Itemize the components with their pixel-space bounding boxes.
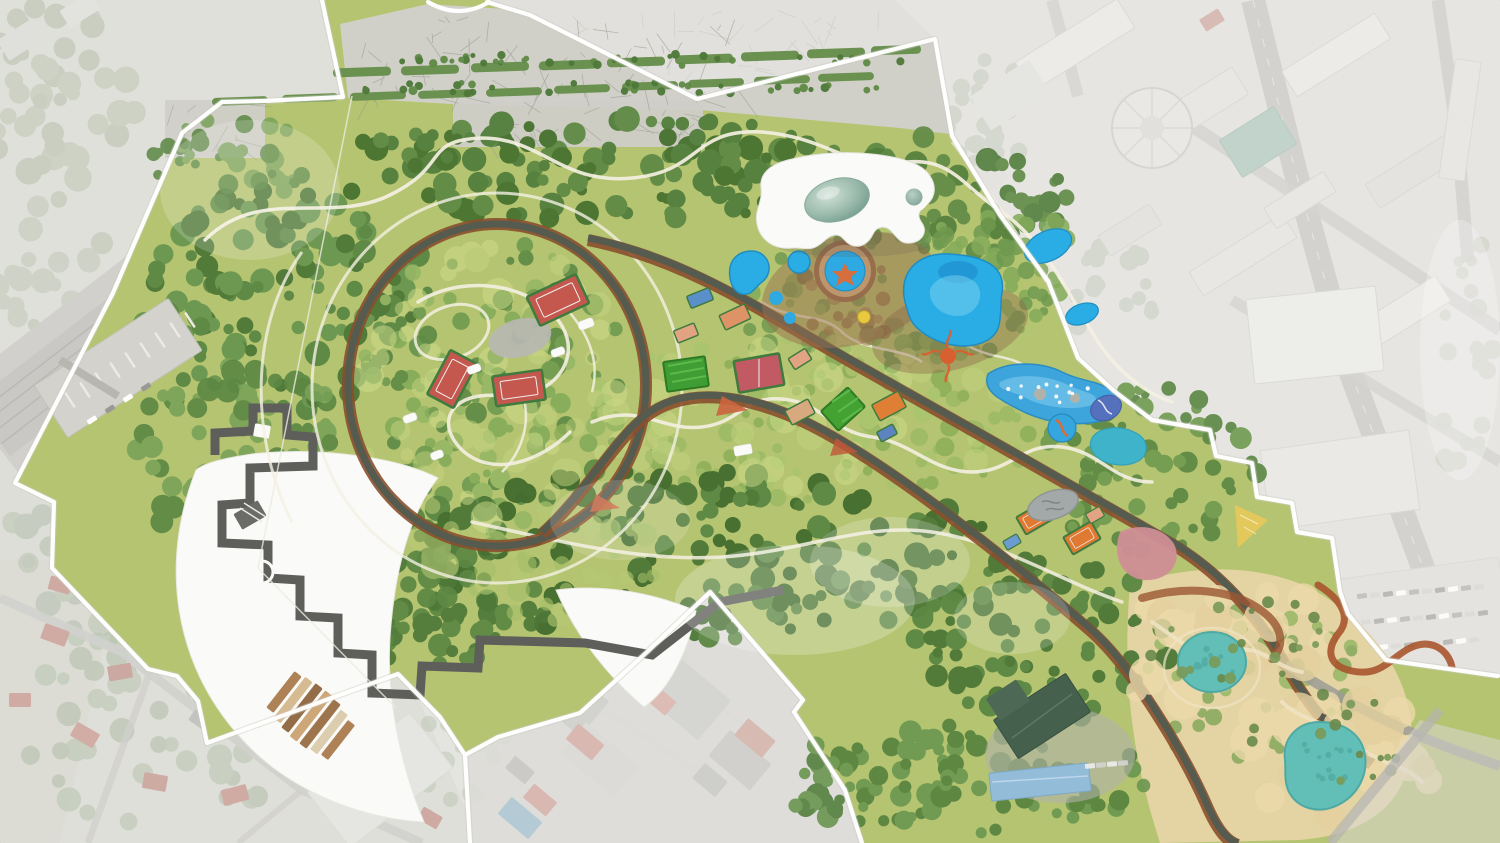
park-vegetation-blob (941, 775, 952, 786)
park-vegetation-blob (619, 571, 633, 585)
trucks-unit (1096, 762, 1106, 768)
park-vegetation-blob (148, 260, 165, 277)
park-vegetation-blob (223, 324, 233, 334)
alley-trees-blob (468, 81, 476, 89)
park-vegetation-blob (699, 472, 719, 492)
park-vegetation-blob (399, 326, 415, 342)
river-island (1034, 388, 1046, 400)
trucks-unit (1107, 761, 1117, 767)
park-vegetation-blob (915, 729, 936, 750)
octopus-slide (940, 348, 956, 364)
beach-trees-blob (1262, 596, 1274, 608)
park-vegetation-blob (792, 467, 801, 476)
park-vegetation-blob (753, 417, 763, 427)
park-vegetation-blob (1173, 488, 1188, 503)
park-vegetation-blob (724, 360, 733, 369)
haze (160, 120, 340, 260)
park-vegetation-blob (400, 576, 416, 592)
park-vegetation-blob (437, 586, 458, 607)
alley-trees-blob (480, 59, 487, 66)
trucks-unit (1085, 763, 1095, 769)
park-master-plan (0, 0, 1500, 843)
park-vegetation-blob (794, 500, 805, 511)
tennis-court-red (492, 370, 546, 407)
park-vegetation-blob (429, 410, 447, 428)
park-vegetation-blob (417, 133, 435, 151)
park-vegetation-blob (933, 648, 943, 658)
park-vegetation-blob (725, 517, 741, 533)
park-vegetation-blob (925, 664, 948, 687)
beach-trees-blob (1384, 754, 1391, 761)
park-vegetation-blob (582, 567, 599, 584)
park-vegetation-blob (151, 495, 174, 518)
park-vegetation-blob (676, 117, 690, 131)
beach-trees-blob (1213, 602, 1225, 614)
beach-trees-blob (1209, 656, 1221, 668)
alley-trees-blob (469, 89, 476, 96)
park-vegetation-blob (988, 411, 1001, 424)
park-vegetation-blob (222, 337, 246, 361)
pond-ripples-blob (1304, 748, 1310, 754)
white-pad (332, 514, 345, 525)
park-vegetation-blob (761, 153, 772, 164)
park-vegetation-blob (440, 265, 456, 281)
park-vegetation-blob (743, 323, 756, 336)
park-vegetation-blob (671, 452, 690, 471)
beach-sand-blob (1255, 783, 1285, 813)
park-vegetation-blob (441, 608, 456, 623)
alley-trees-blob (808, 87, 813, 92)
park-vegetation-blob (638, 573, 649, 584)
park-vegetation-blob (899, 780, 912, 793)
park-vegetation-blob (157, 389, 169, 401)
park-vegetation-blob (316, 386, 333, 403)
park-vegetation-blob (947, 731, 964, 748)
park-vegetation-blob (483, 469, 491, 477)
park-vegetation-blob (740, 208, 750, 218)
park-vegetation-blob (906, 629, 926, 649)
park-vegetation-blob (976, 827, 987, 838)
park-vegetation-blob (556, 458, 582, 484)
alley-trees-blob (679, 62, 686, 69)
park-vegetation-blob (597, 572, 612, 587)
park-vegetation-blob (661, 116, 675, 130)
park-vegetation-blob (821, 775, 833, 787)
beach-trees-blob (1291, 600, 1300, 609)
alley-trees-blob (569, 60, 575, 66)
park-vegetation-blob (971, 236, 990, 255)
park-vegetation-blob (417, 588, 437, 608)
river-floats-blob (1045, 383, 1049, 387)
park-vegetation-blob (647, 569, 660, 582)
park-vegetation-blob (176, 372, 191, 387)
pond-ripples-blob (1203, 657, 1208, 662)
park-vegetation-blob (499, 143, 519, 163)
park-vegetation-blob (962, 696, 975, 709)
park-vegetation-blob (659, 128, 677, 146)
park-vegetation-blob (469, 473, 480, 484)
park-vegetation-blob (1205, 459, 1221, 475)
park-vegetation-blob (355, 134, 371, 150)
alley-trees-blob (593, 60, 602, 69)
park-vegetation-blob (910, 428, 928, 446)
park-vegetation-blob (524, 121, 535, 132)
beach-trees-blob (1317, 689, 1329, 701)
pond-ripples-blob (1197, 664, 1202, 669)
alley-trees-blob (545, 88, 553, 96)
park-vegetation-blob (425, 498, 441, 514)
park-vegetation-blob (343, 183, 360, 200)
park-vegetation-blob (703, 503, 719, 519)
park-vegetation-blob (738, 178, 753, 193)
alley-trees-blob (493, 59, 499, 65)
alley-trees-blob (489, 85, 495, 91)
alley-trees-blob (499, 59, 504, 64)
park-vegetation-blob (725, 142, 741, 158)
park-vegetation-blob (701, 113, 718, 130)
park-vegetation-blob (505, 425, 513, 433)
park-vegetation-blob (537, 174, 548, 185)
deck-texture-blob (841, 317, 852, 328)
park-vegetation-blob (1009, 153, 1026, 170)
alley-trees-blob (453, 81, 461, 89)
park-vegetation-blob (141, 436, 163, 458)
park-vegetation-blob (540, 598, 553, 611)
alley-trees-blob (699, 52, 707, 60)
beach-trees-blob (1336, 776, 1345, 785)
beach-trees-blob (1329, 719, 1341, 731)
deck-texture-blob (874, 315, 883, 324)
river-floats-blob (1086, 386, 1090, 390)
beach-trees-blob (1346, 700, 1355, 709)
park-vegetation-blob (966, 735, 988, 757)
park-vegetation-blob (418, 326, 437, 345)
beach-trees-blob (1341, 709, 1352, 720)
park-vegetation-blob (249, 330, 261, 342)
park-vegetation-blob (1205, 501, 1223, 519)
park-vegetation-blob (1080, 562, 1097, 579)
mini-pitch-green (663, 356, 709, 392)
park-vegetation-blob (858, 802, 868, 812)
river-floats-blob (1019, 395, 1023, 399)
beach-trees-blob (1225, 672, 1236, 683)
park-vegetation-blob (1052, 173, 1064, 185)
park-vegetation-blob (337, 307, 350, 320)
park-vegetation-blob (446, 645, 458, 657)
park-vegetation-blob (1049, 666, 1060, 677)
park-vegetation-blob (713, 534, 726, 547)
park-vegetation-blob (948, 666, 971, 689)
park-vegetation-blob (408, 158, 423, 173)
park-vegetation-blob (460, 491, 474, 505)
park-vegetation-blob (1013, 169, 1026, 182)
park-vegetation-blob (813, 362, 843, 392)
park-vegetation-blob (464, 247, 489, 272)
park-vegetation-blob (1067, 811, 1080, 824)
beach-trees-blob (1370, 699, 1378, 707)
alley-trees-blob (545, 58, 554, 67)
park-vegetation-blob (951, 755, 962, 766)
park-vegetation-blob (733, 492, 748, 507)
alley-trees-blob (450, 89, 457, 96)
beach-trees-blob (1296, 644, 1303, 651)
alley-trees-blob (458, 57, 464, 63)
park-vegetation-blob (539, 208, 559, 228)
park-vegetation-blob (1189, 390, 1208, 409)
park-vegetation-blob (799, 768, 810, 779)
park-vegetation-blob (506, 257, 514, 265)
park-vegetation-blob (995, 158, 1008, 171)
beach-trees-blob (1168, 626, 1174, 632)
park-vegetation-blob (932, 231, 950, 249)
park-vegetation-blob (812, 482, 836, 506)
park-vegetation-blob (1082, 641, 1095, 654)
park-vegetation-blob (834, 462, 858, 486)
park-vegetation-blob (336, 234, 355, 253)
park-vegetation-blob (1131, 580, 1142, 591)
park-vegetation-blob (724, 199, 743, 218)
park-vegetation-blob (1203, 524, 1221, 542)
park-vegetation-blob (646, 116, 657, 127)
park-vegetation-blob (268, 374, 282, 388)
park-vegetation-blob (507, 605, 523, 621)
alley-trees-blob (363, 86, 368, 91)
river-floats-blob (1054, 394, 1058, 398)
alley-trees-blob (821, 83, 830, 92)
park-vegetation-blob (433, 172, 457, 196)
alley-trees-blob (409, 86, 418, 95)
deck-texture-blob (876, 292, 891, 307)
park-vegetation-blob (474, 559, 495, 580)
park-vegetation-blob (292, 321, 305, 334)
park-vegetation-blob (989, 824, 1001, 836)
park-vegetation-blob (1020, 426, 1037, 443)
park-vegetation-blob (186, 250, 197, 261)
alley-trees-blob (470, 53, 475, 58)
park-vegetation-blob (359, 349, 372, 362)
park-vegetation-blob (719, 464, 736, 481)
park-vegetation-blob (1004, 656, 1015, 667)
beach-trees-blob (1247, 736, 1258, 747)
park-vegetation-blob (689, 129, 706, 146)
beach-trees-blob (1356, 751, 1364, 759)
park-vegetation-blob (981, 217, 996, 232)
beach-trees-blob (1228, 643, 1238, 653)
park-vegetation-blob (1137, 779, 1151, 793)
park-vegetation-blob (803, 495, 812, 504)
haze (810, 517, 970, 607)
park-vegetation-blob (601, 380, 627, 406)
park-vegetation-blob (839, 763, 853, 777)
park-vegetation-blob (192, 425, 207, 440)
park-vegetation-blob (657, 192, 667, 202)
park-vegetation-blob (950, 649, 963, 662)
deck-texture-blob (824, 326, 834, 336)
park-vegetation-blob (1128, 498, 1145, 515)
park-vegetation-blob (869, 766, 888, 785)
park-vegetation-blob (535, 405, 556, 426)
alley-trees-blob (631, 56, 638, 63)
park-vegetation-blob (186, 268, 204, 286)
park-vegetation-blob (397, 622, 410, 635)
alley-trees-blob (523, 56, 529, 62)
river-floats-blob (1058, 401, 1062, 405)
pond-ripples-blob (1203, 646, 1210, 653)
alley-trees-blob (497, 51, 505, 59)
beach-trees-blob (1312, 641, 1319, 648)
master-plan-rendering (0, 0, 1500, 843)
beach-trees-blob (1217, 674, 1226, 683)
haze (550, 480, 690, 560)
park-vegetation-blob (145, 460, 161, 476)
park-vegetation-blob (284, 291, 294, 301)
alley-trees-blob (718, 83, 723, 88)
beach-trees-blob (1279, 670, 1286, 677)
park-vegetation-blob (472, 195, 493, 216)
park-vegetation-blob (878, 815, 889, 826)
alley-trees-blob (429, 59, 437, 67)
park-vegetation-blob (1145, 450, 1163, 468)
pond-ripples-blob (1317, 755, 1321, 759)
park-vegetation-blob (373, 132, 389, 148)
beach-trees-blob (1249, 608, 1255, 614)
park-vegetation-blob (587, 390, 604, 407)
park-vegetation-blob (527, 432, 543, 448)
trucks-unit (1118, 760, 1128, 766)
park-vegetation-blob (395, 370, 408, 383)
park-vegetation-blob (395, 302, 409, 316)
park-vegetation-blob (382, 167, 399, 184)
park-vegetation-blob (140, 397, 158, 415)
park-vegetation-blob (614, 106, 640, 132)
park-vegetation-blob (518, 555, 537, 574)
park-vegetation-blob (246, 367, 267, 388)
park-vegetation-blob (923, 631, 938, 646)
park-vegetation-blob (964, 449, 988, 473)
pond-ripples-blob (1326, 767, 1332, 773)
park-vegetation-blob (1161, 381, 1176, 396)
beach-trees-blob (1237, 639, 1246, 648)
park-vegetation-blob (543, 483, 560, 500)
park-vegetation-blob (1188, 524, 1198, 534)
park-vegetation-blob (971, 780, 987, 796)
park-vegetation-blob (566, 128, 581, 143)
alley-trees-blob (768, 87, 774, 93)
park-vegetation-blob (783, 476, 803, 496)
river-floats-blob (1006, 387, 1010, 391)
park-vegetation-blob (665, 207, 686, 228)
alley-trees-blob (621, 87, 628, 94)
alley-trees-blob (797, 54, 803, 60)
beach-sand-blob (1126, 681, 1147, 702)
park-vegetation-blob (539, 160, 550, 171)
park-vegetation-blob (758, 456, 784, 482)
park-vegetation-blob (321, 434, 338, 451)
beach-trees-blob (1186, 666, 1194, 674)
park-vegetation-blob (1202, 691, 1214, 703)
alley-trees-blob (631, 81, 639, 89)
alley-trees-blob (399, 58, 405, 64)
pond-ripples-blob (1316, 773, 1321, 778)
beach-trees-blob (1315, 728, 1326, 739)
park-vegetation-blob (452, 312, 470, 330)
pond-ripples-blob (1325, 752, 1331, 758)
beach-trees-blob (1308, 612, 1319, 623)
park-vegetation-blob (731, 422, 755, 446)
plunge-pool (769, 291, 783, 305)
alley-trees-blob (671, 50, 680, 59)
park-vegetation-blob (746, 119, 758, 131)
park-vegetation-blob (961, 367, 985, 391)
park-vegetation-blob (441, 151, 454, 164)
alley-trees-blob (729, 57, 736, 64)
beach-sand-blob (1377, 715, 1404, 742)
park-vegetation-blob (700, 181, 715, 196)
park-vegetation-blob (549, 255, 570, 276)
beach-trees-blob (1145, 650, 1156, 661)
park-vegetation-blob (1029, 309, 1043, 323)
park-vegetation-blob (957, 390, 969, 402)
alley-trees-blob (570, 80, 577, 87)
park-vegetation-blob (843, 493, 864, 514)
park-vegetation-blob (948, 199, 967, 218)
alley-trees-blob (896, 57, 904, 65)
alley-trees-blob (399, 86, 407, 94)
alley-trees-blob (873, 85, 879, 91)
alley-trees-blob (799, 84, 808, 93)
pond-ripples-blob (1347, 748, 1352, 753)
park-vegetation-blob (894, 811, 913, 830)
park-vegetation-blob (219, 271, 243, 295)
park-vegetation-blob (827, 800, 843, 816)
park-vegetation-blob (380, 294, 391, 305)
river-floats-blob (1037, 385, 1041, 389)
park-vegetation-blob (738, 135, 763, 160)
park-vegetation-blob (1205, 708, 1222, 725)
park-vegetation-blob (169, 401, 185, 417)
park-vegetation-blob (412, 613, 435, 636)
park-vegetation-blob (1052, 808, 1062, 818)
pond-ripples-blob (1328, 773, 1336, 781)
river-floats-blob (1069, 384, 1072, 387)
alley-trees-blob (863, 87, 870, 94)
park-vegetation-blob (602, 142, 617, 157)
park-vegetation-blob (482, 278, 514, 310)
park-vegetation-blob (936, 437, 955, 456)
park-vegetation-blob (900, 759, 911, 770)
alley-trees-blob (440, 56, 448, 64)
park-vegetation-blob (539, 129, 557, 147)
park-vegetation-blob (1230, 427, 1252, 449)
park-vegetation-blob (774, 139, 797, 162)
river-floats-blob (1055, 384, 1059, 388)
park-vegetation-blob (498, 616, 508, 626)
park-vegetation-blob (715, 166, 735, 186)
park-vegetation-blob (1223, 477, 1235, 489)
alley-trees-blob (684, 82, 691, 89)
alley-trees-blob (449, 58, 454, 63)
park-vegetation-blob (750, 534, 764, 548)
park-vegetation-blob (724, 540, 735, 551)
park-vegetation-blob (1011, 413, 1021, 423)
alley-trees-blob (416, 57, 424, 65)
alley-trees-blob (657, 87, 665, 95)
beach-trees-blob (1370, 774, 1377, 781)
beach-trees-blob (1249, 724, 1259, 734)
park-vegetation-blob (1098, 603, 1119, 624)
park-vegetation-blob (945, 616, 955, 626)
park-vegetation-blob (237, 317, 254, 334)
